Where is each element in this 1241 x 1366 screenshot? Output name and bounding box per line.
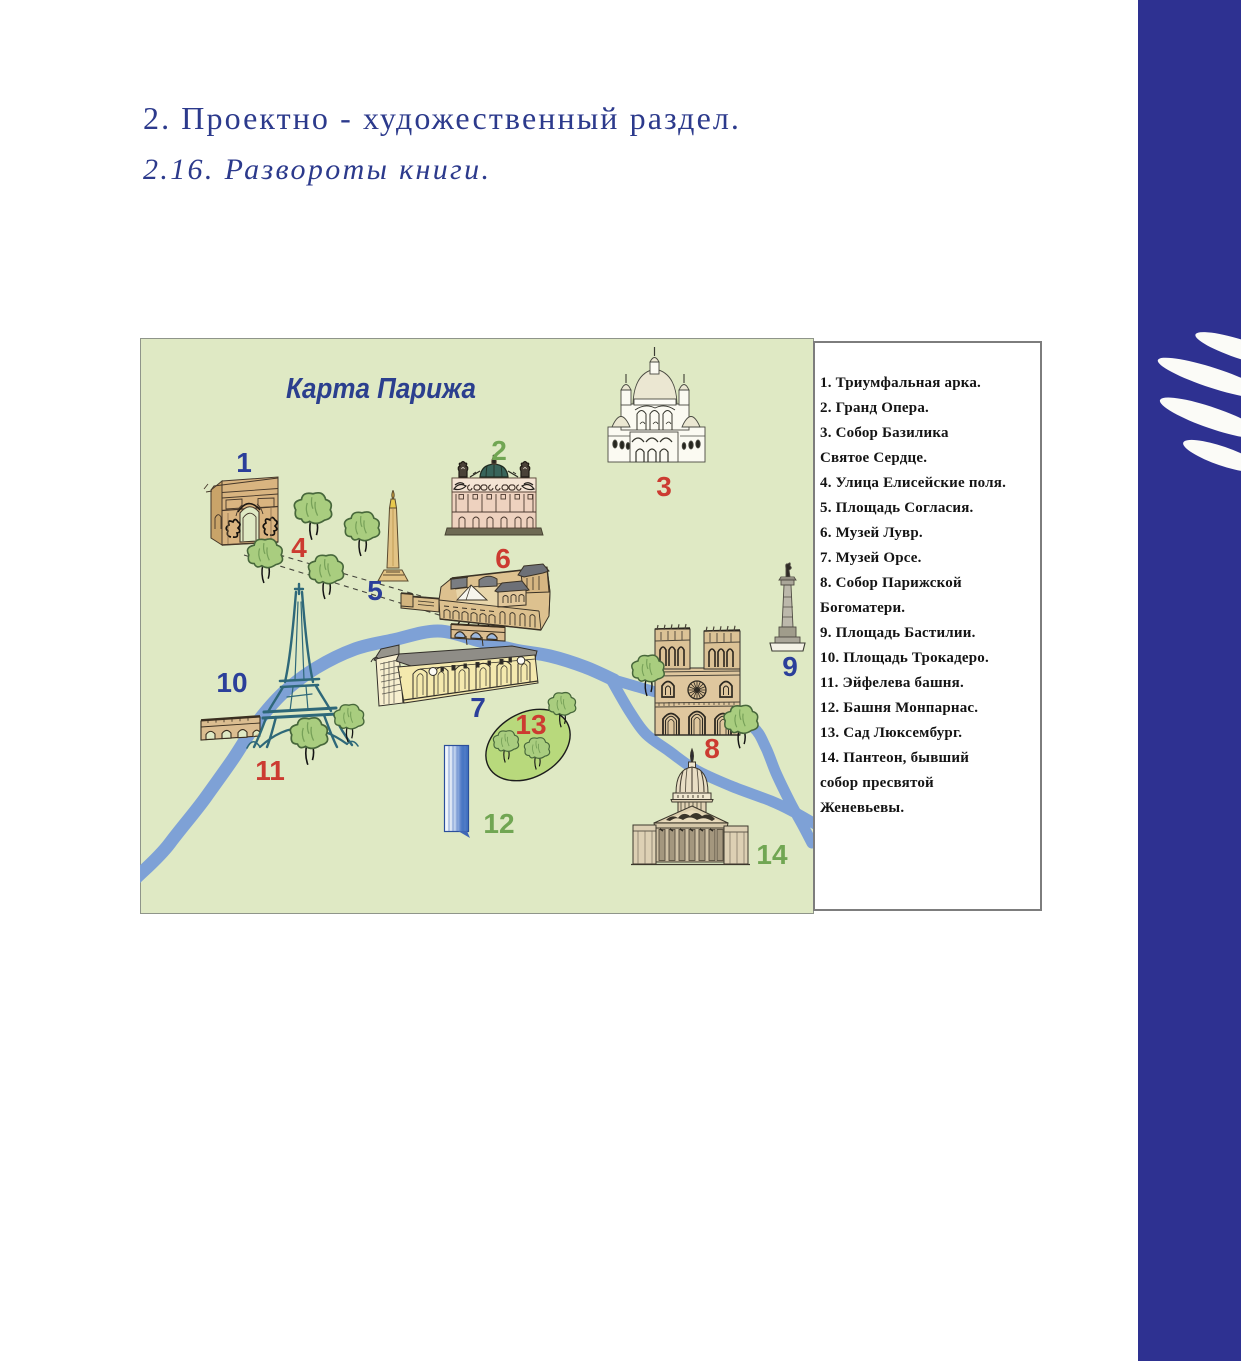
svg-text:13: 13 (515, 709, 546, 740)
svg-text:10: 10 (216, 667, 247, 698)
svg-text:Карта Парижа: Карта Парижа (286, 373, 476, 405)
svg-text:5: 5 (367, 575, 383, 606)
svg-text:3: 3 (656, 471, 672, 502)
svg-text:8: 8 (704, 733, 720, 764)
svg-text:4: 4 (291, 532, 307, 563)
svg-text:2: 2 (491, 435, 507, 466)
svg-text:9: 9 (782, 651, 798, 682)
svg-text:11: 11 (255, 755, 285, 786)
svg-text:6: 6 (495, 543, 511, 574)
svg-text:1: 1 (236, 447, 252, 478)
svg-text:14: 14 (756, 839, 788, 870)
svg-text:7: 7 (470, 692, 486, 723)
svg-text:12: 12 (483, 808, 514, 839)
